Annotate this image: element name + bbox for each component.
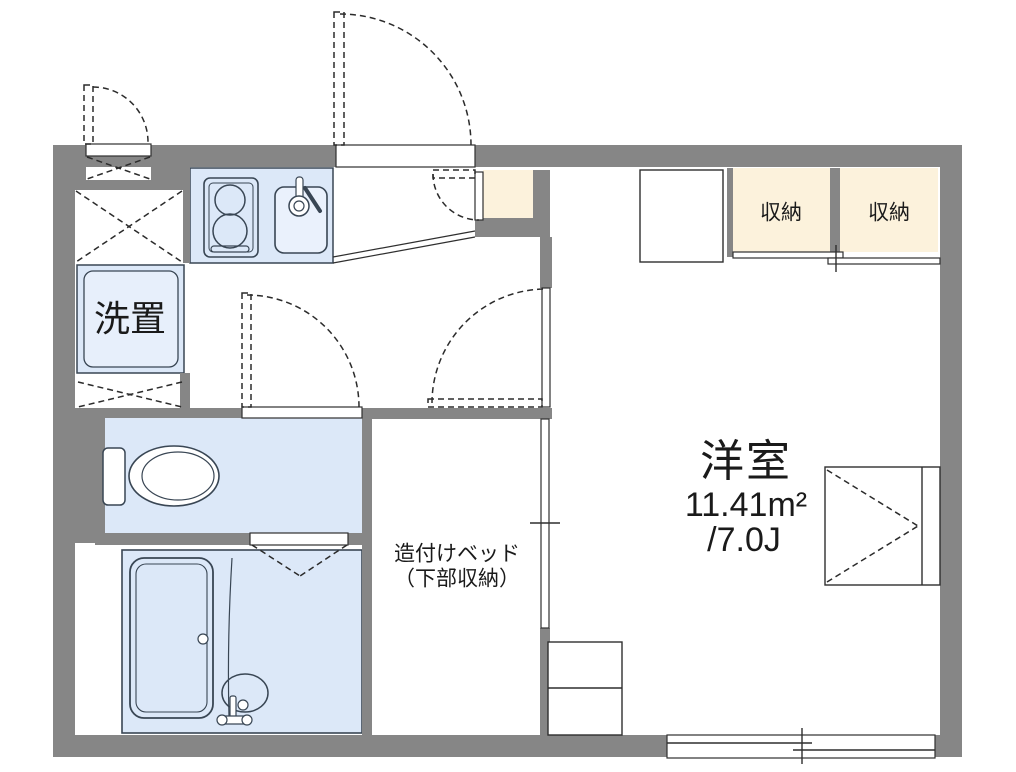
room-door-swing-icon xyxy=(428,289,546,407)
service-door-swing-icon xyxy=(84,85,148,144)
closet-sliding-track-icon xyxy=(828,258,940,264)
kitchen-door-swing-icon xyxy=(433,170,479,220)
closet-sliding-track-icon xyxy=(733,252,843,258)
floorplan-canvas: 洗置 収納 収納 洋室 11.41m² /7.0J 造付けベッド （下部収納） xyxy=(0,0,1016,772)
refrigerator-space xyxy=(640,170,723,262)
washer-place-label: 洗置 xyxy=(94,301,166,337)
folding-door-threshold xyxy=(250,533,348,545)
casement-window-icon xyxy=(825,467,940,585)
main-room-area-label: 11.41m² xyxy=(685,488,807,522)
room-door-leaf xyxy=(542,288,550,407)
counter-step-line xyxy=(333,231,475,263)
service-door-threshold xyxy=(86,144,151,156)
floorplan-drawing xyxy=(0,0,1016,772)
main-room-name-label: 洋室 xyxy=(700,440,792,484)
entry-storage-fill xyxy=(483,170,533,218)
main-room-tatami-label: /7.0J xyxy=(707,523,781,557)
entry-door-swing-icon xyxy=(334,12,471,145)
sliding-window-icon xyxy=(667,735,935,758)
toilet-door-threshold xyxy=(242,407,362,418)
storage-right-label: 収納 xyxy=(868,203,910,224)
storage-left-label: 収納 xyxy=(760,203,802,224)
kitchen-sink-icon xyxy=(275,177,327,253)
entry-threshold xyxy=(336,145,475,167)
kitchen-door-leaf xyxy=(475,172,483,220)
built-in-bed-label-line2: （下部収納） xyxy=(394,569,520,590)
built-in-bed-label-line1: 造付けベッド xyxy=(394,544,520,565)
toilet-door-swing-icon xyxy=(242,293,359,407)
toilet-icon xyxy=(103,446,219,506)
